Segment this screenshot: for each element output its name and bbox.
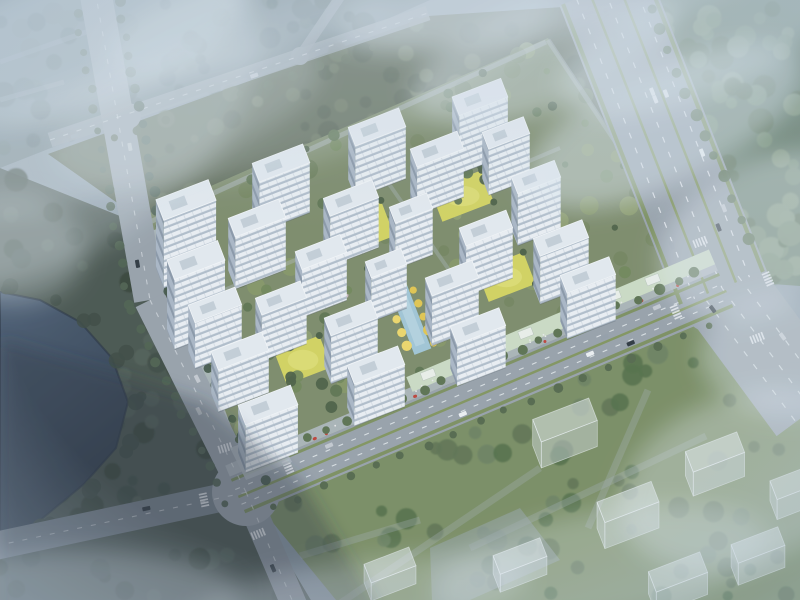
aerial-render: [0, 0, 800, 600]
cool-tint: [0, 0, 800, 600]
aerial-render-canvas: [0, 0, 800, 600]
atmosphere-layer: [0, 0, 800, 600]
